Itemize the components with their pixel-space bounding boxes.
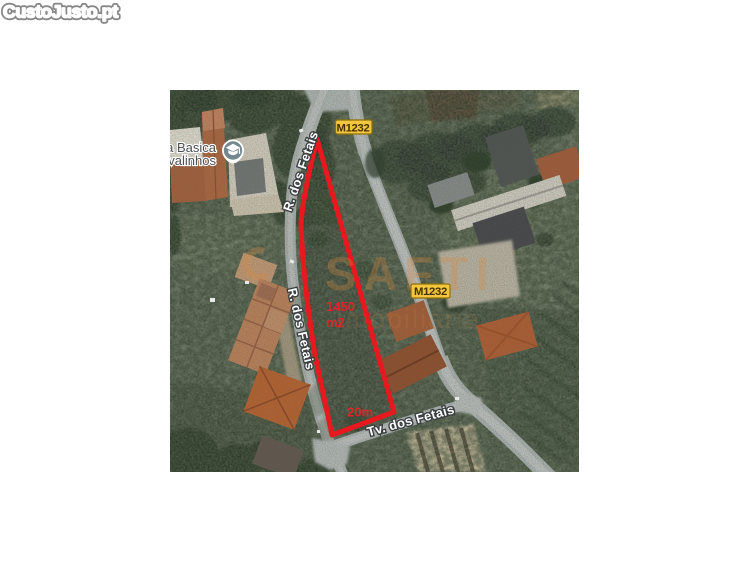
svg-text:Imobiliária: Imobiliária — [336, 304, 481, 334]
svg-text:1450: 1450 — [326, 299, 355, 314]
svg-text:20m: 20m — [347, 405, 373, 420]
svg-text:M1232: M1232 — [336, 123, 369, 135]
svg-text:valinhos: valinhos — [168, 153, 216, 168]
svg-text:SAFTI: SAFTI — [325, 247, 496, 300]
svg-text:CustoJusto.pt: CustoJusto.pt — [3, 2, 118, 22]
svg-text:M1232: M1232 — [414, 286, 447, 298]
svg-text:m2: m2 — [326, 315, 345, 330]
